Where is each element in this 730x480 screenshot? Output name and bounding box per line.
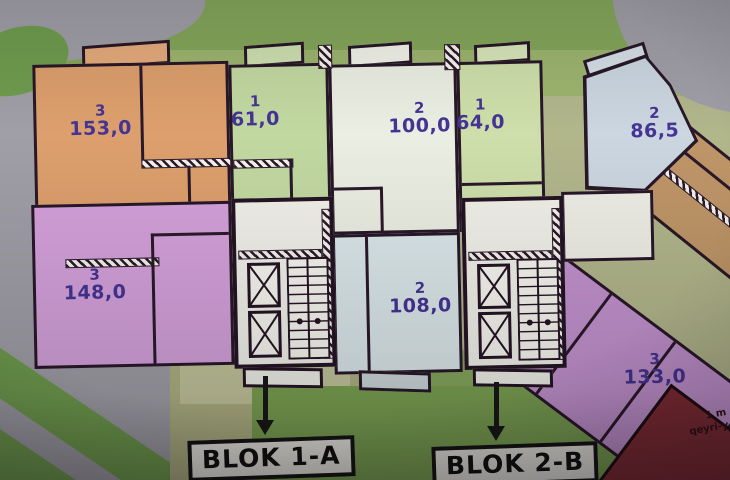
core-blok1 bbox=[231, 197, 337, 369]
balcony-108 bbox=[359, 370, 431, 392]
wall-stub-2 bbox=[444, 44, 461, 70]
unit-area: 148,0 bbox=[41, 282, 149, 304]
building-plan: 1 m qeyri-y bbox=[0, 0, 730, 480]
hall-block2 bbox=[561, 190, 654, 262]
elevator-icon bbox=[246, 262, 281, 309]
unit-white-100 bbox=[328, 62, 460, 235]
unit-area: 86,5 bbox=[620, 121, 690, 142]
down-arrow-icon bbox=[263, 376, 268, 420]
unit-label-133: 3 133,0 bbox=[608, 351, 701, 389]
core-blok2 bbox=[461, 196, 567, 370]
porch-blok1 bbox=[243, 367, 323, 388]
unit-area: 108,0 bbox=[379, 296, 461, 318]
stairs-icon bbox=[516, 258, 560, 361]
stairs-icon bbox=[286, 257, 330, 360]
unit-label-153: 3 153,0 bbox=[45, 102, 156, 140]
elevator-icon bbox=[247, 310, 282, 359]
unit-green-61 bbox=[228, 63, 331, 205]
wall-stub-1 bbox=[318, 45, 332, 69]
blok-2b-label: BLOK 2-B bbox=[431, 441, 599, 480]
elevator-icon bbox=[477, 263, 512, 310]
blok-1a-text: BLOK 1-A bbox=[202, 441, 341, 475]
unit-label-148: 3 148,0 bbox=[41, 267, 150, 305]
unit-label-86: 2 86,5 bbox=[619, 105, 690, 142]
unit-label-108: 2 108,0 bbox=[379, 280, 462, 317]
unit-area: 153,0 bbox=[45, 118, 155, 140]
unit-label-64: 1 64,0 bbox=[447, 97, 514, 134]
unit-area: 133,0 bbox=[609, 367, 701, 389]
unit-label-61: 1 61,0 bbox=[223, 94, 288, 131]
blok-1a-label: BLOK 1-A bbox=[187, 435, 355, 480]
floorplan-photo: 1 m qeyri-y bbox=[0, 0, 730, 480]
unit-area: 61,0 bbox=[223, 109, 287, 130]
down-arrow-icon bbox=[494, 382, 499, 426]
elevator-icon bbox=[478, 311, 513, 360]
unit-area: 64,0 bbox=[447, 113, 513, 134]
porch-blok2 bbox=[473, 368, 553, 387]
blok-2b-text: BLOK 2-B bbox=[446, 447, 585, 480]
unit-orange-153 bbox=[32, 61, 231, 221]
